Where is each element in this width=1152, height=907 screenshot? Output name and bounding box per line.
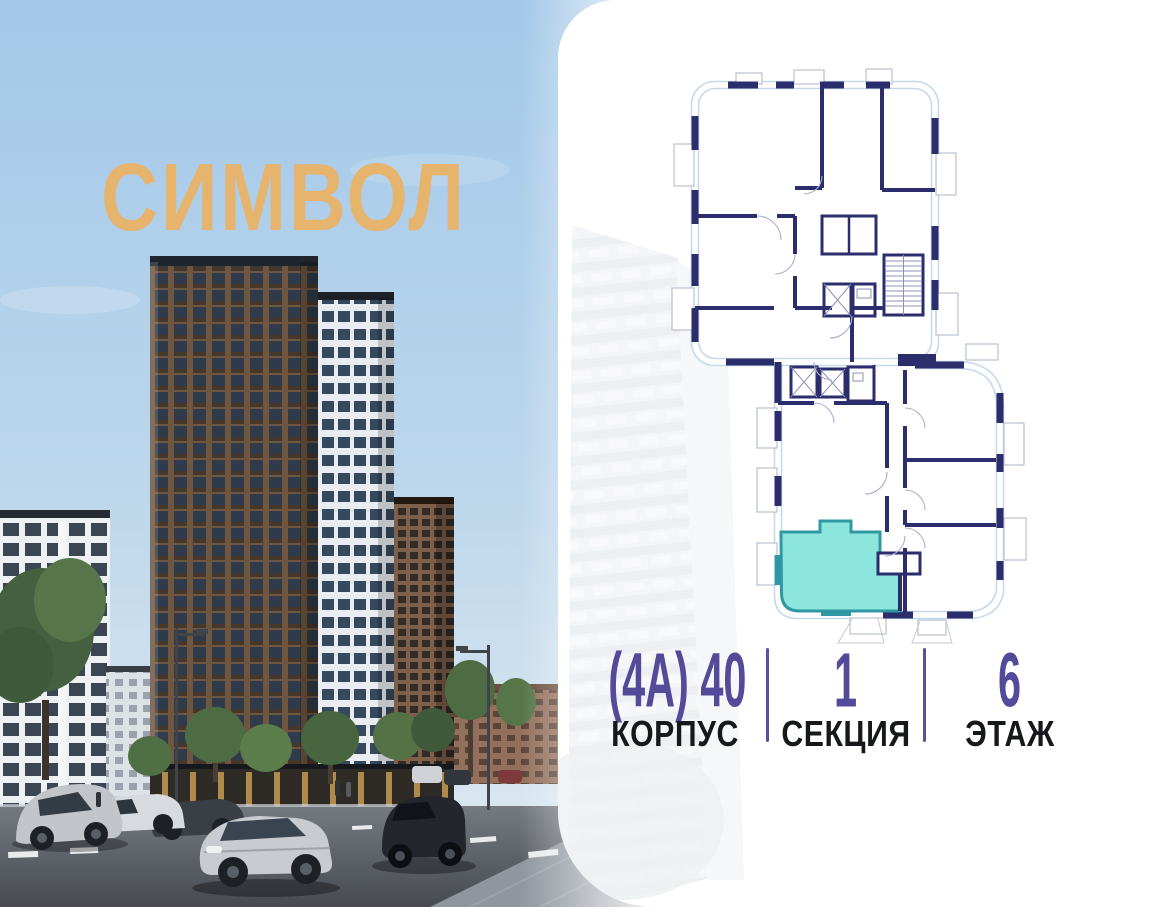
apartment-panel: (4А) 40 КОРПУС 1 СЕКЦИЯ 6 ЭТАЖ xyxy=(558,0,1152,907)
building-label: КОРПУС xyxy=(577,714,774,755)
section-value: 1 xyxy=(834,636,857,725)
brand-logo: СИМВОЛ xyxy=(101,150,467,246)
apartment-card: СИМВОЛ xyxy=(0,0,1152,907)
unit-info-row: (4А) 40 КОРПУС 1 СЕКЦИЯ 6 ЭТАЖ xyxy=(584,636,1094,746)
building-value: (4А) 40 xyxy=(608,636,746,725)
niche-box xyxy=(878,553,920,574)
building-info: (4А) 40 КОРПУС xyxy=(584,636,766,746)
floor-plan xyxy=(662,58,1152,648)
section-label: СЕКЦИЯ xyxy=(763,714,929,755)
floor-label: ЭТАЖ xyxy=(919,714,1100,755)
section-info: 1 СЕКЦИЯ xyxy=(769,636,923,746)
floor-info: 6 ЭТАЖ xyxy=(926,636,1094,746)
floor-value: 6 xyxy=(998,636,1021,725)
